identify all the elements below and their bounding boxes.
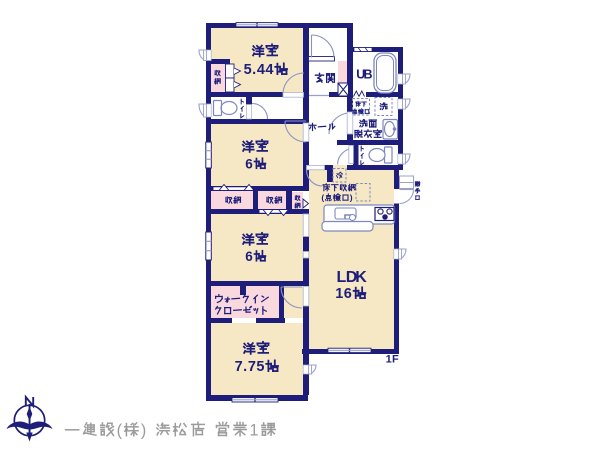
svg-text:(: ( xyxy=(117,421,123,439)
svg-text:F: F xyxy=(392,354,399,366)
svg-text:.: . xyxy=(243,359,247,375)
svg-text:1: 1 xyxy=(386,354,392,366)
svg-text:7: 7 xyxy=(235,359,243,375)
svg-text:5: 5 xyxy=(256,359,264,375)
svg-text:6: 6 xyxy=(245,156,253,171)
svg-text:5: 5 xyxy=(244,62,252,78)
svg-text:K: K xyxy=(355,269,367,286)
svg-text:6: 6 xyxy=(344,286,352,302)
svg-text:.: . xyxy=(252,62,256,78)
svg-text:B: B xyxy=(364,68,373,82)
svg-text:(: ( xyxy=(321,193,324,203)
svg-text:4: 4 xyxy=(265,62,273,78)
svg-text:4: 4 xyxy=(257,62,265,78)
svg-text:6: 6 xyxy=(245,249,253,264)
svg-text:1: 1 xyxy=(335,286,343,302)
svg-text:1: 1 xyxy=(250,421,259,439)
svg-text:): ) xyxy=(141,421,146,439)
svg-text:): ) xyxy=(350,193,353,203)
svg-text:7: 7 xyxy=(248,359,256,375)
